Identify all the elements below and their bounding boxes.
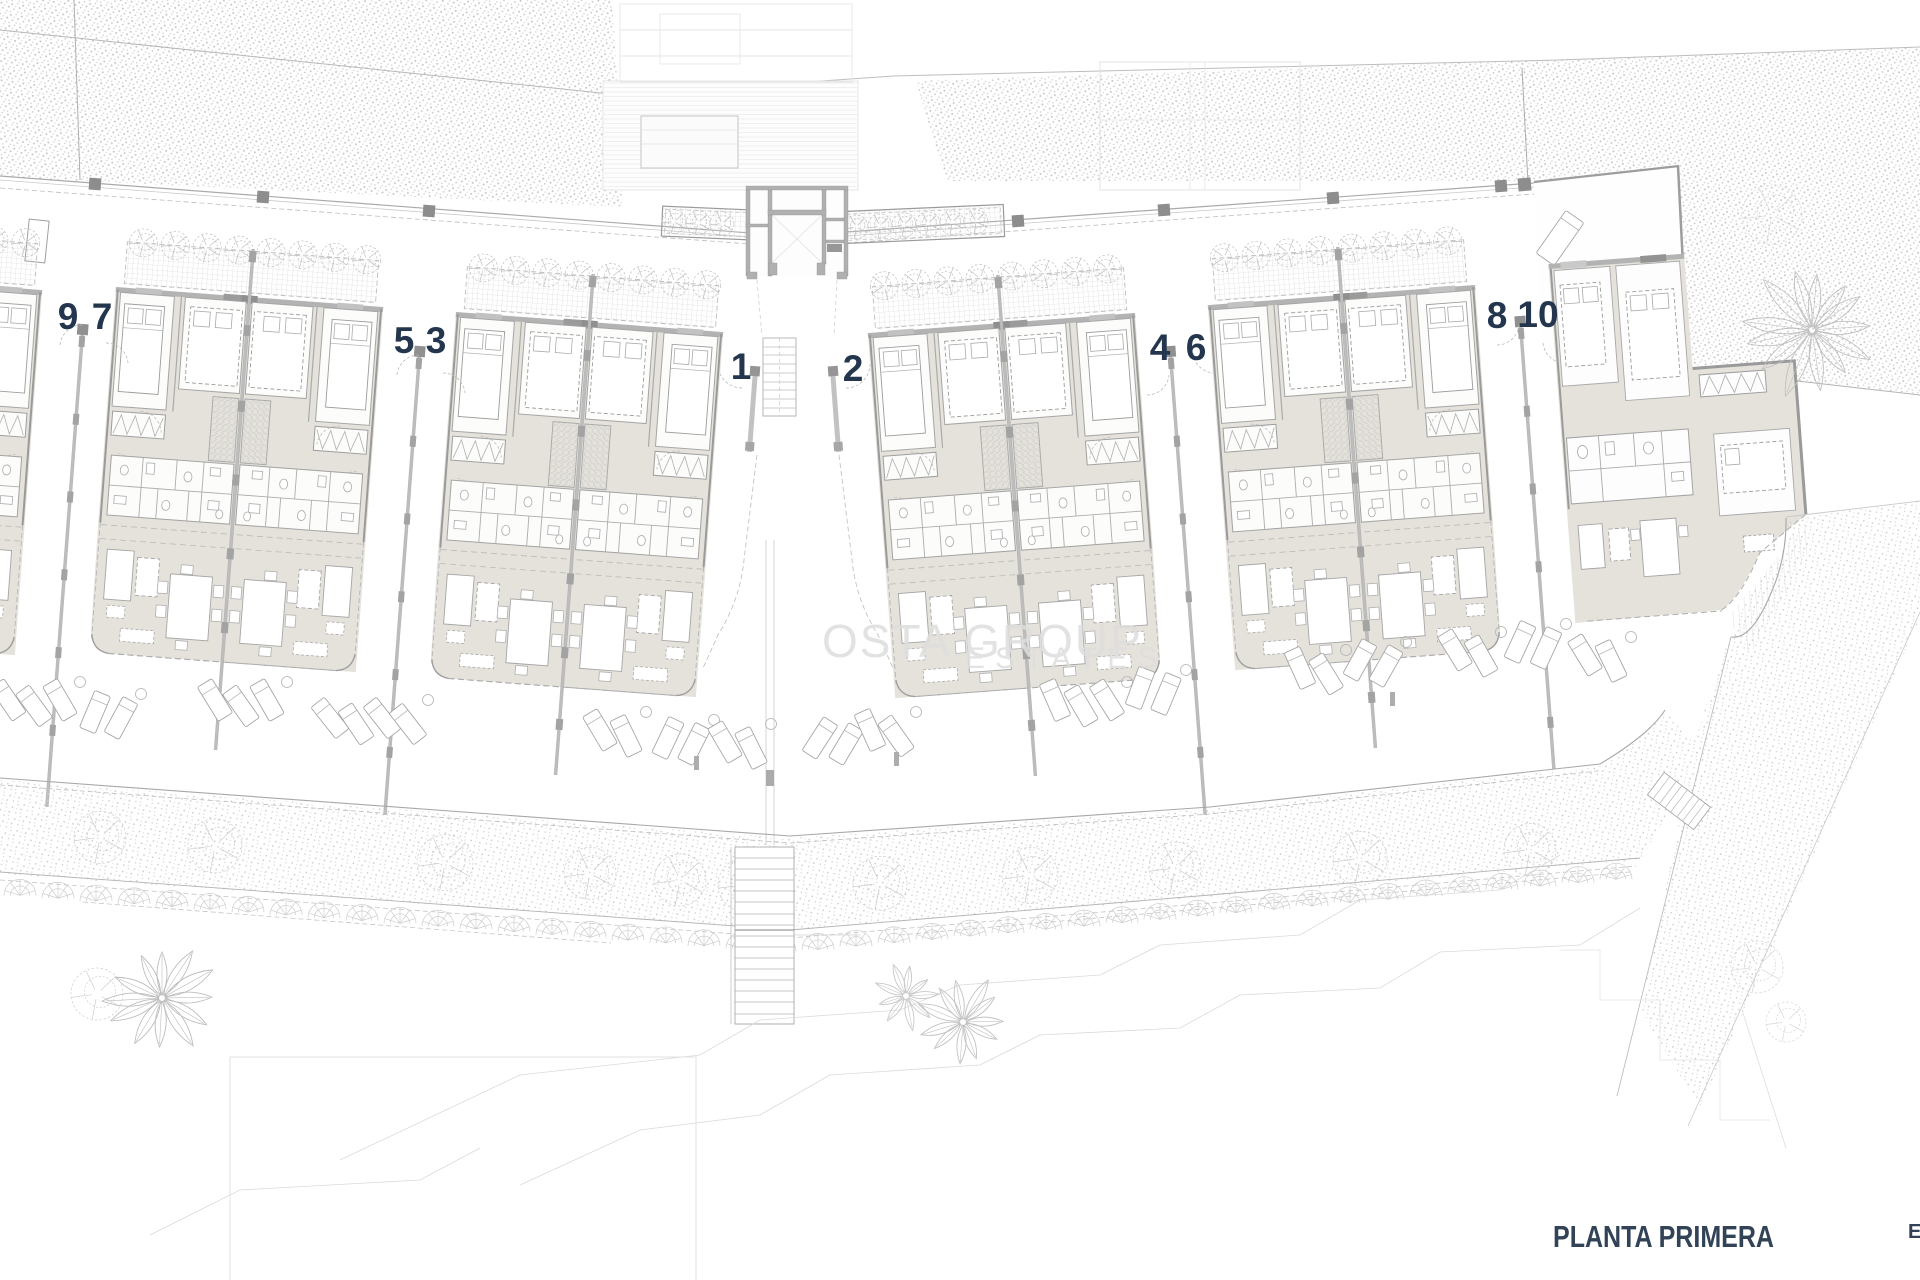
- svg-text:7: 7: [92, 296, 113, 337]
- svg-text:2: 2: [843, 348, 864, 389]
- svg-text:1: 1: [731, 346, 752, 387]
- svg-text:E: E: [1908, 1221, 1920, 1243]
- svg-text:9: 9: [58, 296, 79, 337]
- svg-text:10: 10: [1517, 294, 1558, 335]
- svg-text:6: 6: [1186, 327, 1207, 368]
- svg-text:8: 8: [1487, 295, 1508, 336]
- svg-text:5: 5: [394, 320, 415, 361]
- svg-text:ESTATES: ESTATES: [965, 642, 1167, 675]
- svg-text:3: 3: [426, 320, 447, 361]
- svg-text:PLANTA PRIMERA: PLANTA PRIMERA: [1553, 1219, 1774, 1254]
- svg-text:4: 4: [1150, 327, 1171, 368]
